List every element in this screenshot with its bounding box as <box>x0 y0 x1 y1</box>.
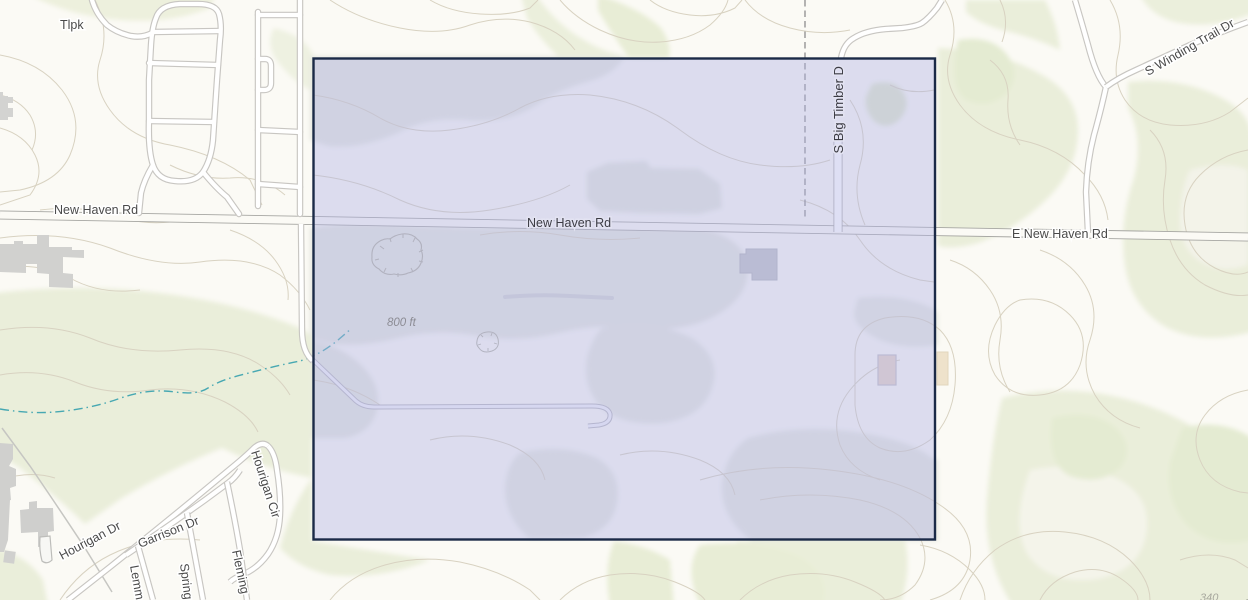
svg-text:E New Haven Rd: E New Haven Rd <box>1012 227 1108 241</box>
svg-text:S Big Timber D: S Big Timber D <box>831 66 846 153</box>
svg-text:800 ft: 800 ft <box>387 317 417 329</box>
svg-text:Tlpk: Tlpk <box>60 18 84 32</box>
svg-text:New Haven Rd: New Haven Rd <box>54 203 138 217</box>
svg-text:New Haven Rd: New Haven Rd <box>527 216 611 230</box>
